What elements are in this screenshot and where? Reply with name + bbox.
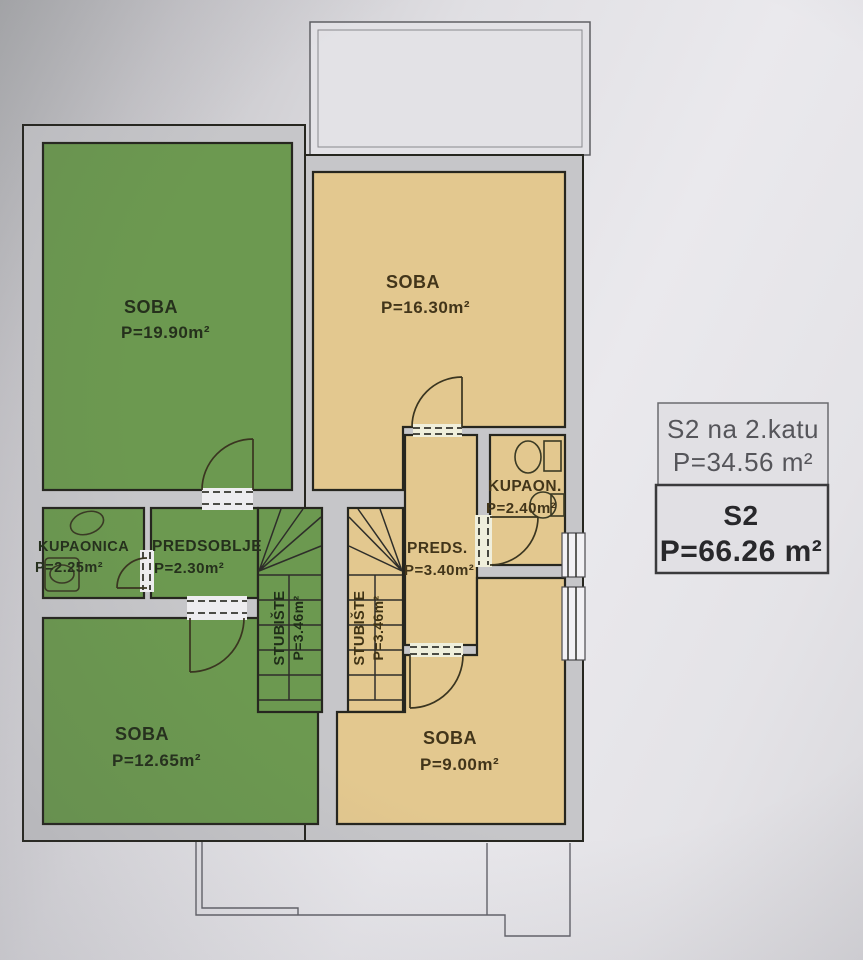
room-area: P=9.00m² [420,755,499,774]
room-area: P=3.46m² [370,595,386,660]
room-label: PREDS. [407,540,468,557]
windows-right-wall [562,533,585,660]
opening [410,643,463,657]
floor-plan: SOBA P=19.90m² SOBA P=16.30m² KUPAONICA … [0,0,863,960]
room-label: KUPAONICA [38,539,129,555]
opening [475,515,492,567]
legend-title: S2 na 2.katu [667,414,819,444]
room-label: KUPAON. [488,478,562,495]
room-area: P=19.90m² [121,323,210,342]
unit-area: P=66.26 m² [660,535,823,568]
opening [187,596,247,620]
room-label: SOBA [423,728,477,748]
room-label: SOBA [386,272,440,292]
balcony-top [310,22,590,155]
opening [413,424,462,437]
floor-plan-photo: SOBA P=19.90m² SOBA P=16.30m² KUPAONICA … [0,0,863,960]
room-label: PREDSOBLJE [152,538,262,555]
room-area: P=2.25m² [35,560,103,576]
room-area: P=2.30m² [154,560,224,577]
room-area: P=3.46m² [290,595,306,660]
room-area: P=2.40m² [486,500,556,517]
unit-name: S2 [723,500,758,531]
room-area: P=12.65m² [112,751,201,770]
terrace-bottom [196,842,570,936]
room-label: STUBIŠTE [350,591,368,666]
legend: S2 na 2.katu P=34.56 m² S2 P=66.26 m² [656,403,828,573]
room-area: P=3.40m² [404,562,474,579]
room-area: P=16.30m² [381,298,470,317]
window [562,587,585,660]
window [562,533,585,577]
legend-subtitle: P=34.56 m² [673,447,813,477]
room-label: SOBA [115,724,169,744]
room-label: SOBA [124,297,178,317]
room-label: STUBIŠTE [270,591,288,666]
